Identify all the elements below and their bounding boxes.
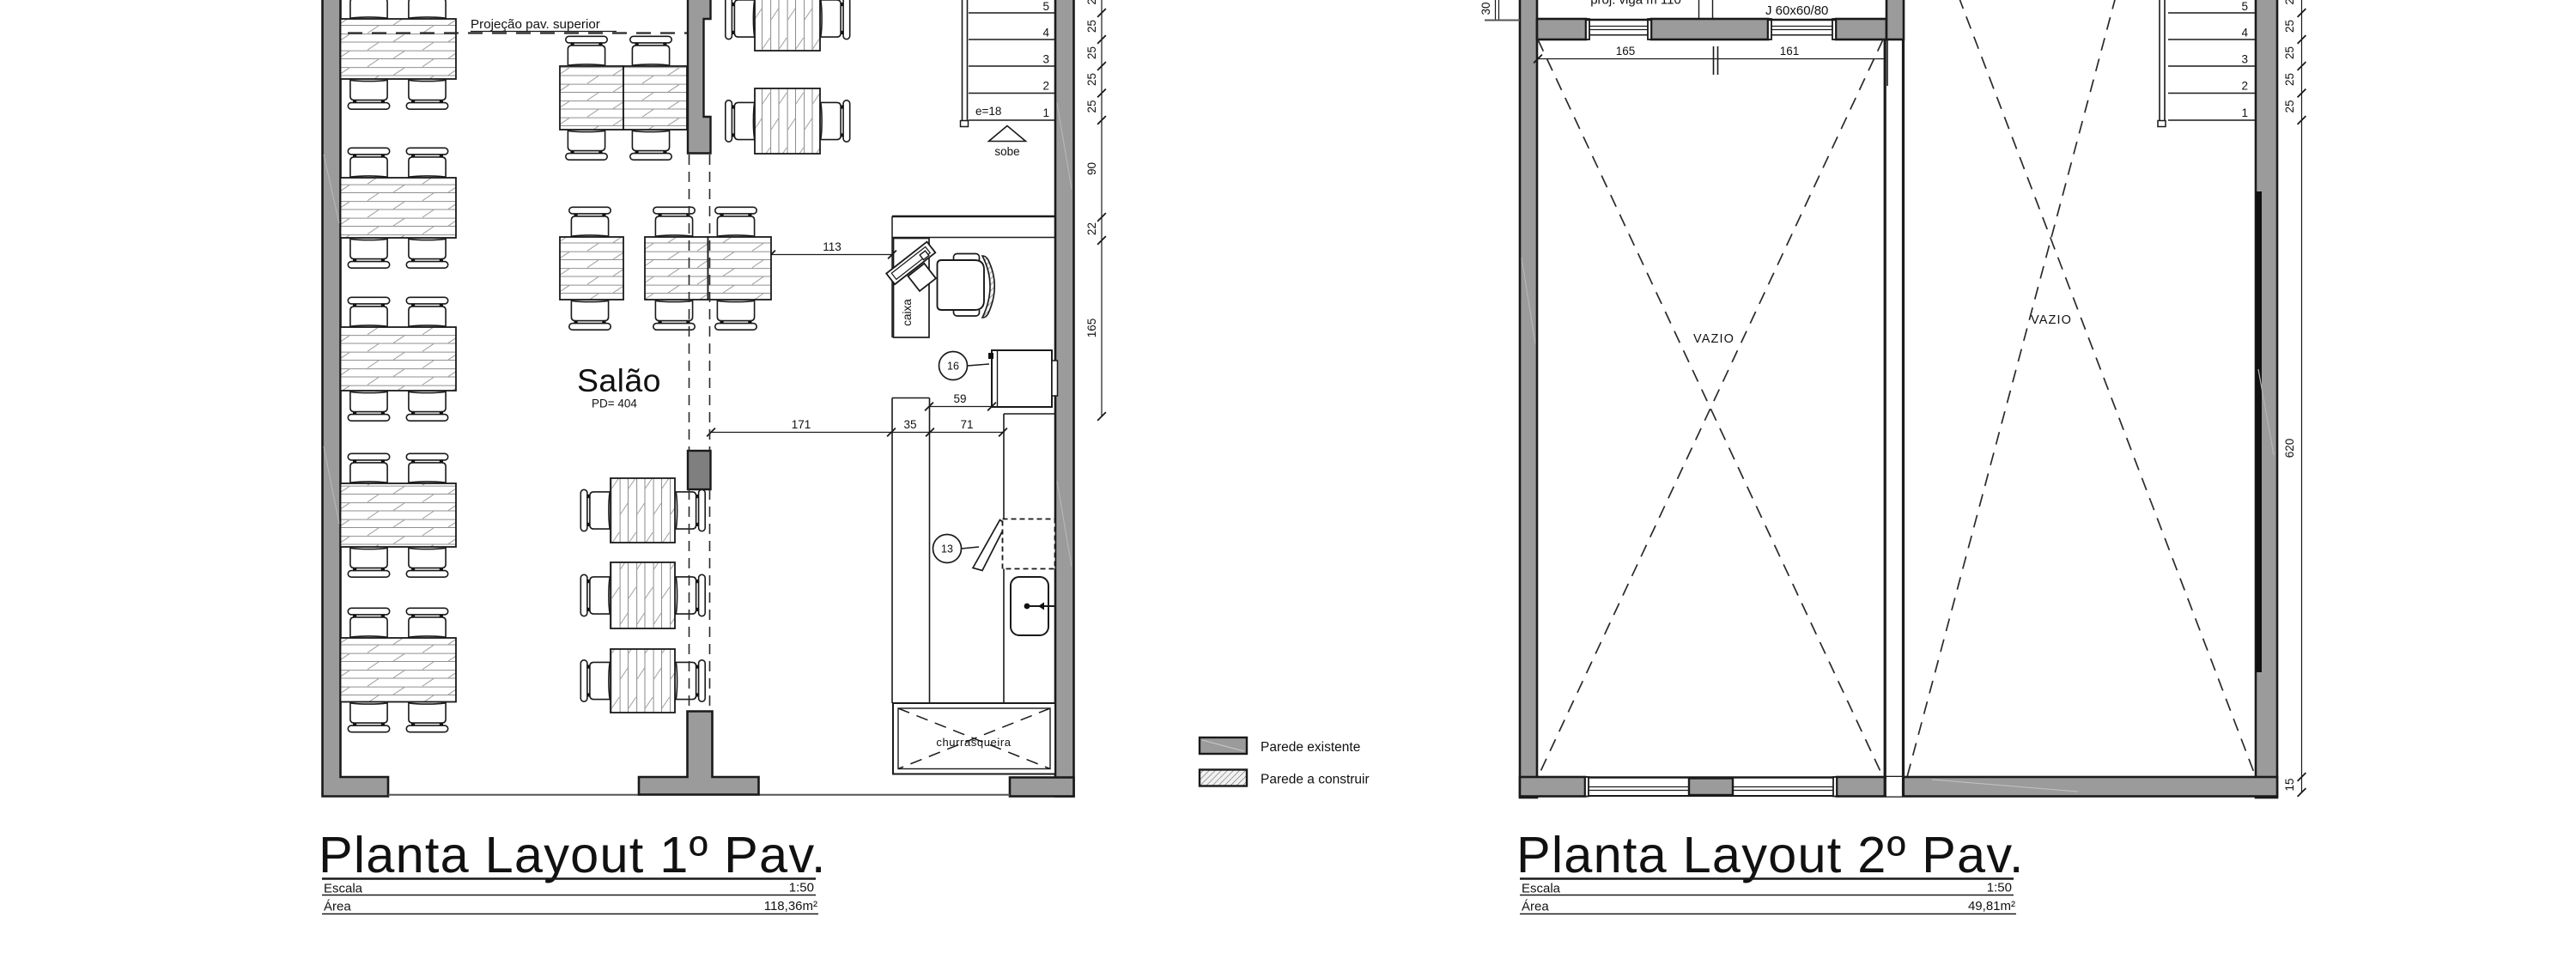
svg-text:4: 4 xyxy=(2241,27,2248,39)
svg-text:25: 25 xyxy=(1085,0,1098,5)
svg-text:49,81m²: 49,81m² xyxy=(1968,899,2015,913)
svg-text:16: 16 xyxy=(947,361,959,373)
svg-text:25: 25 xyxy=(2283,46,2296,59)
svg-text:3: 3 xyxy=(2241,53,2248,66)
svg-text:25: 25 xyxy=(1085,100,1098,112)
svg-text:35: 35 xyxy=(903,418,916,431)
svg-text:VAZIO: VAZIO xyxy=(2031,313,2072,327)
svg-text:165: 165 xyxy=(1616,45,1636,58)
svg-text:165: 165 xyxy=(1085,319,1098,338)
svg-text:1:50: 1:50 xyxy=(789,881,814,895)
svg-text:sobe: sobe xyxy=(994,145,1019,158)
svg-text:25: 25 xyxy=(2283,20,2296,33)
svg-text:proj. viga m 110: proj. viga m 110 xyxy=(1590,0,1681,8)
svg-text:e=18: e=18 xyxy=(975,105,1001,118)
svg-text:1:50: 1:50 xyxy=(1987,881,2012,895)
svg-text:90: 90 xyxy=(1085,162,1098,175)
svg-text:15: 15 xyxy=(2283,778,2296,791)
svg-text:VAZIO: VAZIO xyxy=(1693,332,1735,346)
svg-text:2: 2 xyxy=(1042,80,1049,93)
svg-text:13: 13 xyxy=(941,543,953,555)
svg-text:59: 59 xyxy=(953,392,966,405)
svg-text:PD= 404: PD= 404 xyxy=(592,398,637,410)
svg-text:Área: Área xyxy=(324,900,351,914)
svg-text:Planta Layout 1º Pav.: Planta Layout 1º Pav. xyxy=(319,826,827,883)
svg-text:25: 25 xyxy=(1085,20,1098,33)
svg-text:620: 620 xyxy=(2283,439,2296,458)
svg-text:2: 2 xyxy=(2241,80,2248,93)
svg-text:71: 71 xyxy=(960,418,973,431)
svg-text:Salão: Salão xyxy=(577,362,661,398)
svg-text:caixa: caixa xyxy=(901,299,914,326)
svg-text:1: 1 xyxy=(2241,106,2248,119)
svg-text:Escala: Escala xyxy=(324,882,363,896)
svg-text:Escala: Escala xyxy=(1522,882,1561,896)
svg-text:Área: Área xyxy=(1522,900,1549,914)
svg-text:J 60x60/80: J 60x60/80 xyxy=(1765,3,1828,18)
svg-text:25: 25 xyxy=(2283,100,2296,112)
svg-text:4: 4 xyxy=(1042,27,1049,39)
svg-text:1: 1 xyxy=(1042,106,1049,119)
svg-text:Parede existente: Parede existente xyxy=(1261,740,1360,755)
svg-text:171: 171 xyxy=(792,418,811,431)
svg-text:25: 25 xyxy=(2283,0,2296,5)
svg-text:25: 25 xyxy=(1085,73,1098,86)
svg-text:Projeção pav. superior: Projeção pav. superior xyxy=(471,17,600,32)
svg-text:30: 30 xyxy=(1479,2,1492,15)
svg-text:Parede a construir: Parede a construir xyxy=(1261,773,1370,787)
svg-text:25: 25 xyxy=(2283,73,2296,86)
svg-text:25: 25 xyxy=(1085,46,1098,59)
svg-text:113: 113 xyxy=(823,240,841,253)
svg-text:5: 5 xyxy=(1042,0,1049,13)
svg-text:Planta Layout 2º Pav.: Planta Layout 2º Pav. xyxy=(1516,826,2025,883)
svg-text:churrasqueira: churrasqueira xyxy=(936,736,1011,749)
svg-text:5: 5 xyxy=(2241,0,2248,13)
svg-text:22: 22 xyxy=(1085,222,1098,235)
svg-text:3: 3 xyxy=(1042,53,1049,66)
svg-text:161: 161 xyxy=(1780,45,1800,58)
svg-text:118,36m²: 118,36m² xyxy=(764,899,817,913)
